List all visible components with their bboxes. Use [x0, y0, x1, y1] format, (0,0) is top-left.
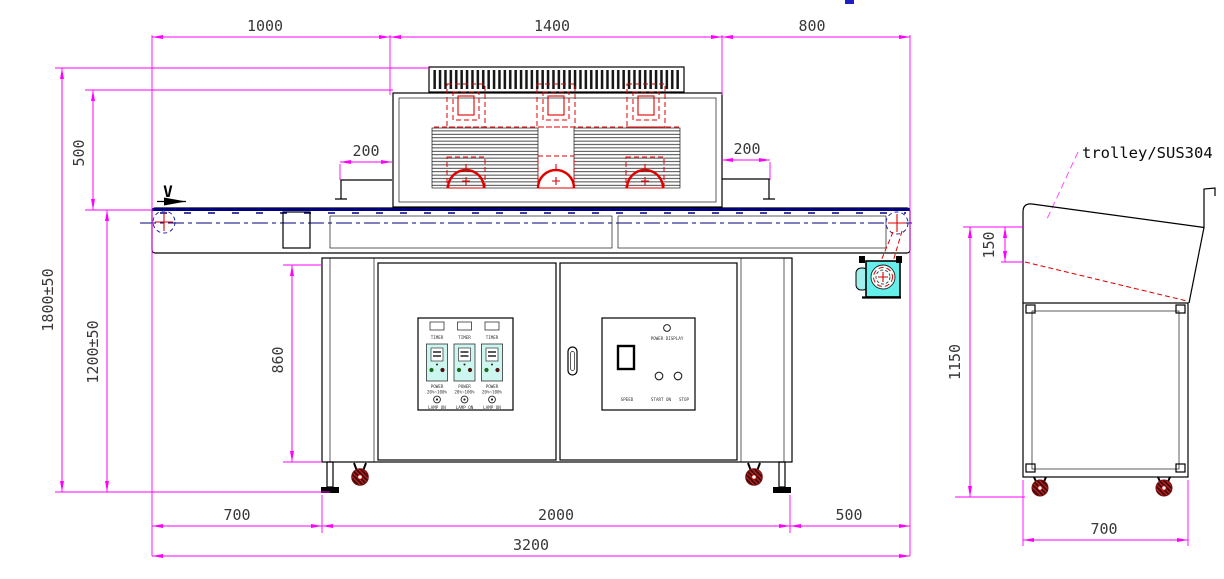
- left-control-panel: TIMER POWER 20%~100% LAMP ON TIMER: [418, 318, 513, 410]
- extension-lines: [55, 35, 910, 556]
- lamp-on-label: LAMP ON: [428, 405, 446, 410]
- trolley-body: [1023, 303, 1188, 477]
- speed-display: [618, 346, 634, 369]
- cabinet: [321, 258, 792, 493]
- machine-casters: [352, 463, 763, 485]
- dim-left-overhang: 700: [223, 506, 250, 524]
- right-roller-crosshair-icon: [888, 214, 906, 232]
- trolley-dimensions: 150 1150 700: [946, 227, 1188, 546]
- lamp-on-label: LAMP ON: [483, 405, 501, 410]
- leveling-feet: [321, 462, 791, 493]
- speed-label: SPEED: [621, 397, 634, 402]
- guard-right: [722, 179, 775, 199]
- lamp-connector-1: [447, 84, 485, 127]
- conveyor-direction: V: [157, 182, 186, 202]
- door-handle-slot: [571, 352, 575, 371]
- conveyor-panel-right: [618, 216, 886, 248]
- trolley-extension-lines: [955, 227, 1188, 546]
- power-label: POWER: [458, 384, 471, 389]
- lamp-connector-2: [537, 84, 575, 127]
- uv-curing-machine-drawing: TIMER POWER 20%~100% LAMP ON TIMER: [0, 0, 1224, 579]
- conveyor: [140, 208, 916, 253]
- dim-trolley-height: 1150: [946, 344, 964, 380]
- cabinet-stiles: [330, 258, 784, 462]
- timer-label: TIMER: [486, 335, 499, 340]
- cropped-text-mark: [845, 0, 854, 4]
- timer-window: [430, 322, 444, 330]
- power-channel-1: TIMER POWER 20%~100% LAMP ON: [427, 322, 448, 410]
- power-channel-3: TIMER POWER 20%~100% LAMP ON: [482, 322, 503, 410]
- direction-label: V: [163, 182, 173, 201]
- left-roller-crosshair-icon: [155, 213, 173, 231]
- engineering-drawing-page: TIMER POWER 20%~100% LAMP ON TIMER: [0, 0, 1224, 579]
- lamp-connector-3: [627, 84, 665, 127]
- cabinet-door-right[interactable]: [560, 263, 737, 460]
- dim-lamp-to-belt: 500: [70, 139, 88, 166]
- trolley-label: trolley/SUS304: [1082, 144, 1213, 162]
- dim-infeed-length: 1000: [247, 17, 283, 35]
- right-control-panel: POWER DISPLAY SPEED START ON STOP: [602, 318, 695, 410]
- front-view: TIMER POWER 20%~100% LAMP ON TIMER: [140, 0, 916, 493]
- vent-slots: [433, 70, 680, 89]
- lamp-on-label: LAMP ON: [456, 405, 474, 410]
- dim-outfeed-length: 800: [798, 17, 825, 35]
- dim-guard-left: 200: [352, 142, 379, 160]
- dim-trolley-width: 700: [1090, 520, 1117, 538]
- stop-button[interactable]: [674, 372, 682, 380]
- lamp-reflector-arc-2: [538, 156, 574, 188]
- power-range-label: 20%~100%: [427, 390, 448, 395]
- conveyor-panel-left: [330, 216, 612, 248]
- timer-label: TIMER: [458, 335, 471, 340]
- dim-cabinet-width: 2000: [538, 506, 574, 524]
- dim-tray-lip: 150: [980, 231, 998, 258]
- dim-guard-right: 200: [733, 140, 760, 158]
- trolley-view: trolley/SUS304 150: [946, 144, 1215, 546]
- power-range-label: 20%~100%: [482, 390, 503, 395]
- timer-window: [485, 322, 499, 330]
- dim-lamp-housing-length: 1400: [534, 17, 570, 35]
- power-range-label: 20%~100%: [454, 390, 475, 395]
- dim-cabinet-height: 860: [269, 346, 287, 373]
- dim-right-overhang: 500: [835, 506, 862, 524]
- power-channel-2: TIMER POWER 20%~100% LAMP ON: [454, 322, 475, 410]
- power-label: POWER: [486, 384, 499, 389]
- belt-tensioner-box: [283, 212, 310, 248]
- power-label: POWER: [431, 384, 444, 389]
- timer-window: [458, 322, 472, 330]
- power-display-indicator: [664, 325, 671, 332]
- start-button[interactable]: [655, 372, 663, 380]
- guard-left: [335, 180, 392, 199]
- cabinet-body: [322, 258, 792, 462]
- start-label: START ON: [651, 397, 672, 402]
- timer-label: TIMER: [431, 335, 444, 340]
- drive-motor: [856, 231, 902, 298]
- lamp-housing: [393, 67, 722, 207]
- dim-belt-height: 1200±50: [84, 320, 102, 383]
- leader-line: [1047, 152, 1078, 219]
- trolley-tray: [1023, 188, 1215, 303]
- guards: [335, 179, 775, 199]
- stop-label: STOP: [679, 397, 690, 402]
- dim-total-height: 1800±50: [39, 268, 57, 331]
- tray-bottom-line: [1025, 262, 1187, 301]
- power-display-label: POWER DISPLAY: [651, 336, 684, 341]
- conveyor-frame: [152, 208, 910, 253]
- trolley-casters: [1032, 477, 1172, 496]
- dim-total-length: 3200: [513, 536, 549, 554]
